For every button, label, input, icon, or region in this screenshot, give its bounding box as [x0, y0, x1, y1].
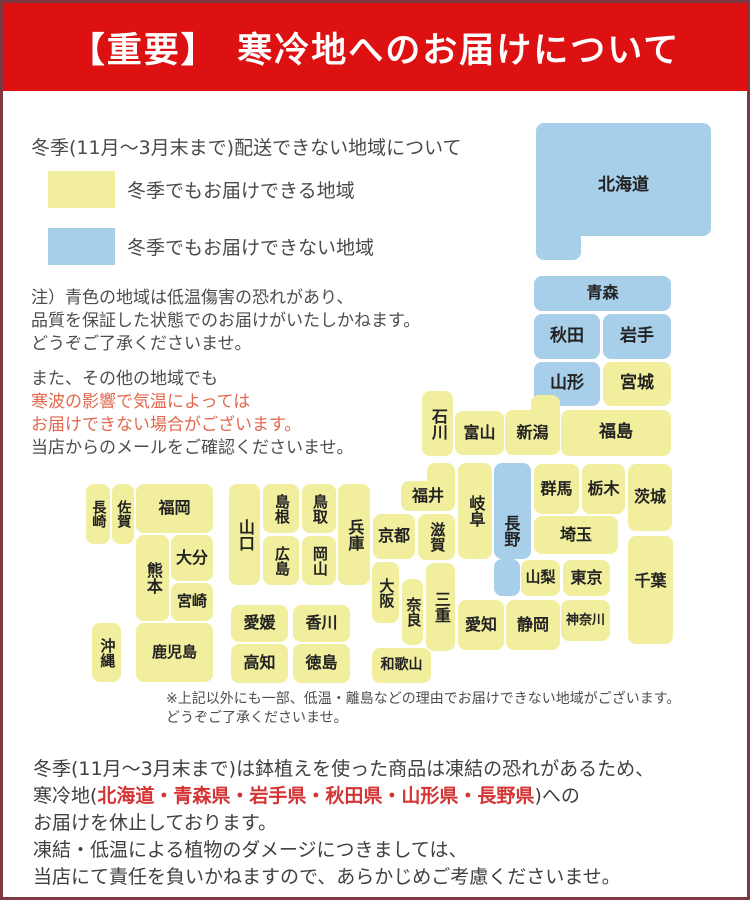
prefecture-label: 福井 — [401, 482, 455, 511]
prefecture-label: 三重 — [426, 563, 455, 651]
prefecture-label: 島根 — [263, 484, 299, 533]
prefecture-label: 群馬 — [534, 464, 579, 514]
prefecture-label: 徳島 — [293, 644, 350, 683]
prefecture-label: 山口 — [229, 484, 260, 585]
prefecture-label: 秋田 — [534, 314, 600, 359]
prefecture-label: 千葉 — [628, 559, 673, 603]
prefecture-label: 京都 — [373, 514, 415, 559]
prefecture-label: 熊本 — [136, 535, 169, 621]
prefecture-label: 富山 — [455, 411, 504, 455]
prefecture-label: 東京 — [563, 560, 610, 596]
prefecture-label: 青森 — [534, 276, 671, 311]
prefecture-label: 和歌山 — [372, 648, 431, 683]
prefecture-label: 神奈川 — [561, 600, 610, 641]
prefecture-label: 沖縄 — [92, 623, 121, 682]
remote-island-footnote: ※上記以外にも一部、低温・離島などの理由でお届けできない地域がございます。 どう… — [166, 690, 680, 728]
prefecture-label: 愛媛 — [231, 605, 288, 642]
prefecture-label: 香川 — [293, 605, 350, 642]
prefecture-label: 栃木 — [582, 464, 625, 514]
prefecture-label: 鹿児島 — [136, 623, 213, 682]
footer-line: 冬季(11月〜3月末まで)は鉢植えを使った商品は凍結の恐れがあるため、 — [33, 756, 654, 783]
prefecture-label: 福岡 — [136, 484, 213, 533]
prefecture-label: 愛知 — [458, 600, 504, 650]
prefecture-label: 静岡 — [506, 600, 560, 650]
footer-line: 当店にて責任を負いかねますので、あらかじめご考慮くださいませ。 — [33, 864, 654, 891]
prefecture-label: 山梨 — [521, 560, 560, 596]
prefecture-label: 鳥取 — [302, 484, 336, 533]
footer-line: 寒冷地(北海道・青森県・岩手県・秋田県・山形県・長野県)への — [33, 783, 654, 810]
prefecture-label: 広島 — [263, 536, 299, 585]
footer-line-suffix: )への — [534, 785, 579, 807]
prefecture-label: 奈良 — [402, 579, 423, 645]
prefecture-label: 埼玉 — [534, 516, 618, 554]
cold-region-delivery-notice: 【重要】 寒冷地へのお届けについて 冬季(11月〜3月末まで)配送できない地域に… — [0, 0, 750, 900]
prefecture-label: 石川 — [422, 391, 453, 456]
prefecture-label: 大阪 — [372, 562, 399, 623]
cold-region-list: 北海道・青森県・岩手県・秋田県・山形県・長野県 — [97, 785, 534, 807]
prefecture-label: 佐賀 — [112, 484, 134, 544]
prefecture-label: 大分 — [171, 535, 213, 581]
prefecture-label: 茨城 — [628, 464, 672, 531]
footer-line-prefix: 寒冷地( — [33, 785, 97, 807]
prefecture-label: 滋賀 — [418, 514, 455, 560]
footer-line: お届けを休止しております。 — [33, 810, 654, 837]
prefecture-label: 宮崎 — [171, 583, 213, 621]
footer-line: 凍結・低温による植物のダメージにつきましては、 — [33, 837, 654, 864]
footnote-line: ※上記以外にも一部、低温・離島などの理由でお届けできない地域がございます。 — [166, 690, 680, 709]
prefecture-label: 長崎 — [86, 484, 110, 544]
prefecture-label: 宮城 — [603, 362, 671, 406]
prefecture-label: 岩手 — [603, 314, 671, 359]
prefecture-label: 高知 — [231, 644, 288, 683]
prefecture-label: 長野 — [496, 481, 524, 581]
prefecture-label: 兵庫 — [338, 484, 370, 585]
prefecture-label: 岡山 — [302, 536, 336, 585]
winter-suspension-notice: 冬季(11月〜3月末まで)は鉢植えを使った商品は凍結の恐れがあるため、 寒冷地(… — [33, 756, 654, 891]
footnote-line: どうぞご了承くださいませ。 — [166, 709, 680, 728]
prefecture-label: 北海道 — [536, 133, 711, 238]
prefecture-label: 福島 — [561, 410, 671, 456]
prefecture-label: 岐阜 — [458, 463, 492, 559]
prefecture-label: 新潟 — [505, 412, 560, 455]
